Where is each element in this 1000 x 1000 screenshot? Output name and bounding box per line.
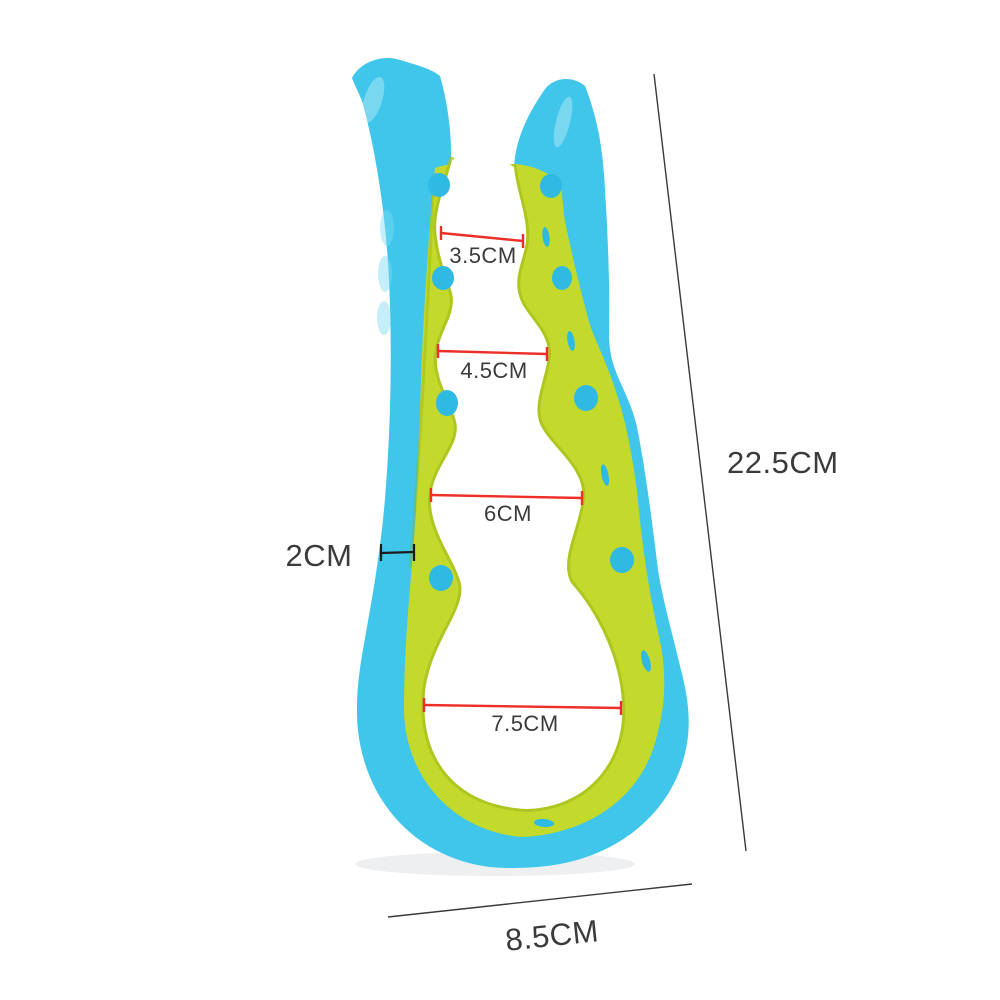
opening-4-size-label: 7.5CM	[491, 713, 558, 735]
thickness-size-label: 2CM	[286, 540, 353, 571]
width-dimension-line	[388, 884, 692, 917]
opening-2-size-label: 4.5CM	[460, 360, 527, 382]
opening-1-size-label: 3.5CM	[449, 245, 516, 267]
product-dimension-diagram: 3.5CM 4.5CM 6CM 7.5CM 2CM 22.5CM 8.5CM	[0, 0, 1000, 1000]
overall-height-label: 22.5CM	[727, 447, 839, 478]
jar-opener-figure	[0, 0, 1000, 1000]
opening-3-size-label: 6CM	[484, 503, 532, 525]
